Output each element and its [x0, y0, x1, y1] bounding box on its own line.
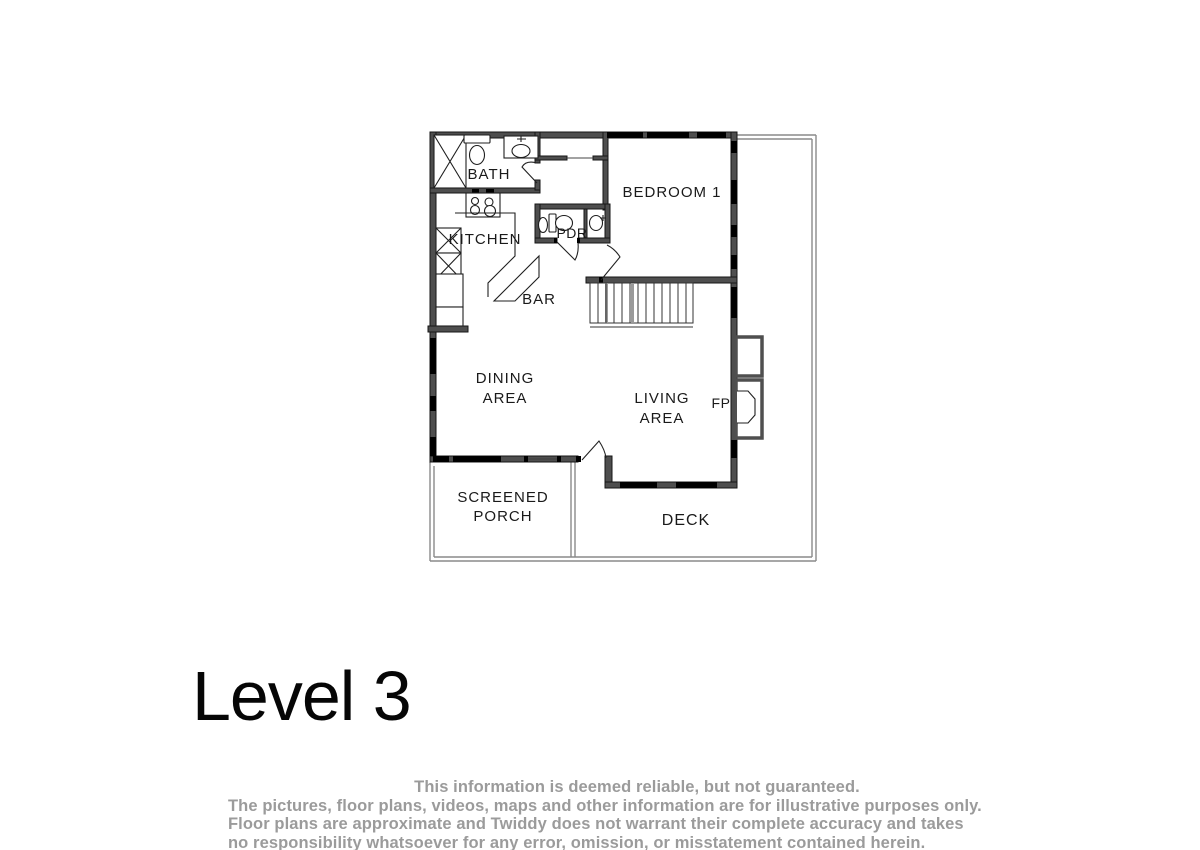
bath-sink-icon: [504, 136, 538, 158]
bath-toilet-icon: [464, 135, 490, 165]
room-label-screened-porch: SCREENED PORCH: [457, 488, 548, 526]
floorplan-drawing: [0, 0, 1200, 850]
bath-closet-icon: [434, 135, 466, 188]
room-label-bath: BATH: [468, 165, 511, 185]
room-label-bar: BAR: [522, 290, 556, 310]
page: BATH BEDROOM 1 KITCHEN PDR BAR DINING AR…: [0, 0, 1200, 850]
stairs-icon: [590, 283, 693, 327]
room-label-fireplace: FP: [712, 393, 731, 413]
deck-door: [582, 441, 606, 460]
disclaimer: This information is deemed reliable, but…: [228, 778, 1046, 850]
disclaimer-line-3: Floor plans are approximate and Twiddy d…: [228, 815, 1046, 834]
room-label-dining-area: DINING AREA: [476, 369, 535, 409]
bath-door: [522, 162, 537, 183]
disclaimer-line-1: This information is deemed reliable, but…: [228, 778, 1046, 797]
room-label-pdr: PDR: [556, 223, 587, 243]
fireplace-icon: [736, 337, 762, 438]
disclaimer-line-2: The pictures, floor plans, videos, maps …: [228, 797, 1046, 816]
room-label-deck: DECK: [662, 511, 710, 531]
level-title: Level 3: [192, 661, 411, 731]
room-label-living-area: LIVING AREA: [634, 389, 689, 429]
pdr-basin-icon: [590, 215, 607, 231]
room-label-kitchen: KITCHEN: [449, 230, 522, 250]
pdr-sink-icon: [539, 218, 548, 233]
pdr-door: [557, 242, 578, 260]
disclaimer-line-4: no responsibility whatsoever for any err…: [228, 834, 1046, 850]
room-label-bedroom1: BEDROOM 1: [622, 183, 721, 203]
bedroom-door: [601, 245, 620, 280]
